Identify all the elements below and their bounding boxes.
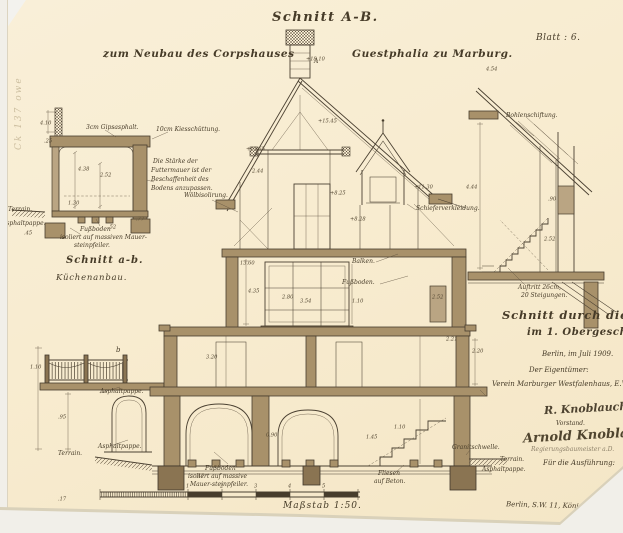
dormer: [356, 119, 410, 205]
stair-detail-drawing: [468, 88, 616, 328]
cellar-stairs: [368, 421, 446, 466]
scan-margin-left: [0, 0, 8, 533]
main-section-drawing: [95, 30, 507, 490]
attic-floor: [222, 249, 466, 257]
chimney-cap: [286, 30, 314, 45]
fence-drawing: [35, 346, 164, 452]
kitchen-detail-drawing: [12, 108, 168, 238]
drawing-linework: [0, 0, 623, 533]
scanned-drawing-sheet: Schnitt A-B. zum Neubau des Corpshauses …: [0, 0, 623, 533]
cellar-arch: [186, 404, 252, 466]
cornice-band: [150, 387, 487, 396]
roof: [224, 78, 438, 211]
vent-pipe: [55, 108, 62, 137]
archive-stamp: Ck 137 owe: [14, 76, 24, 150]
chimney: [290, 45, 310, 78]
window-group: [265, 262, 349, 326]
scale-bar: [100, 489, 360, 500]
